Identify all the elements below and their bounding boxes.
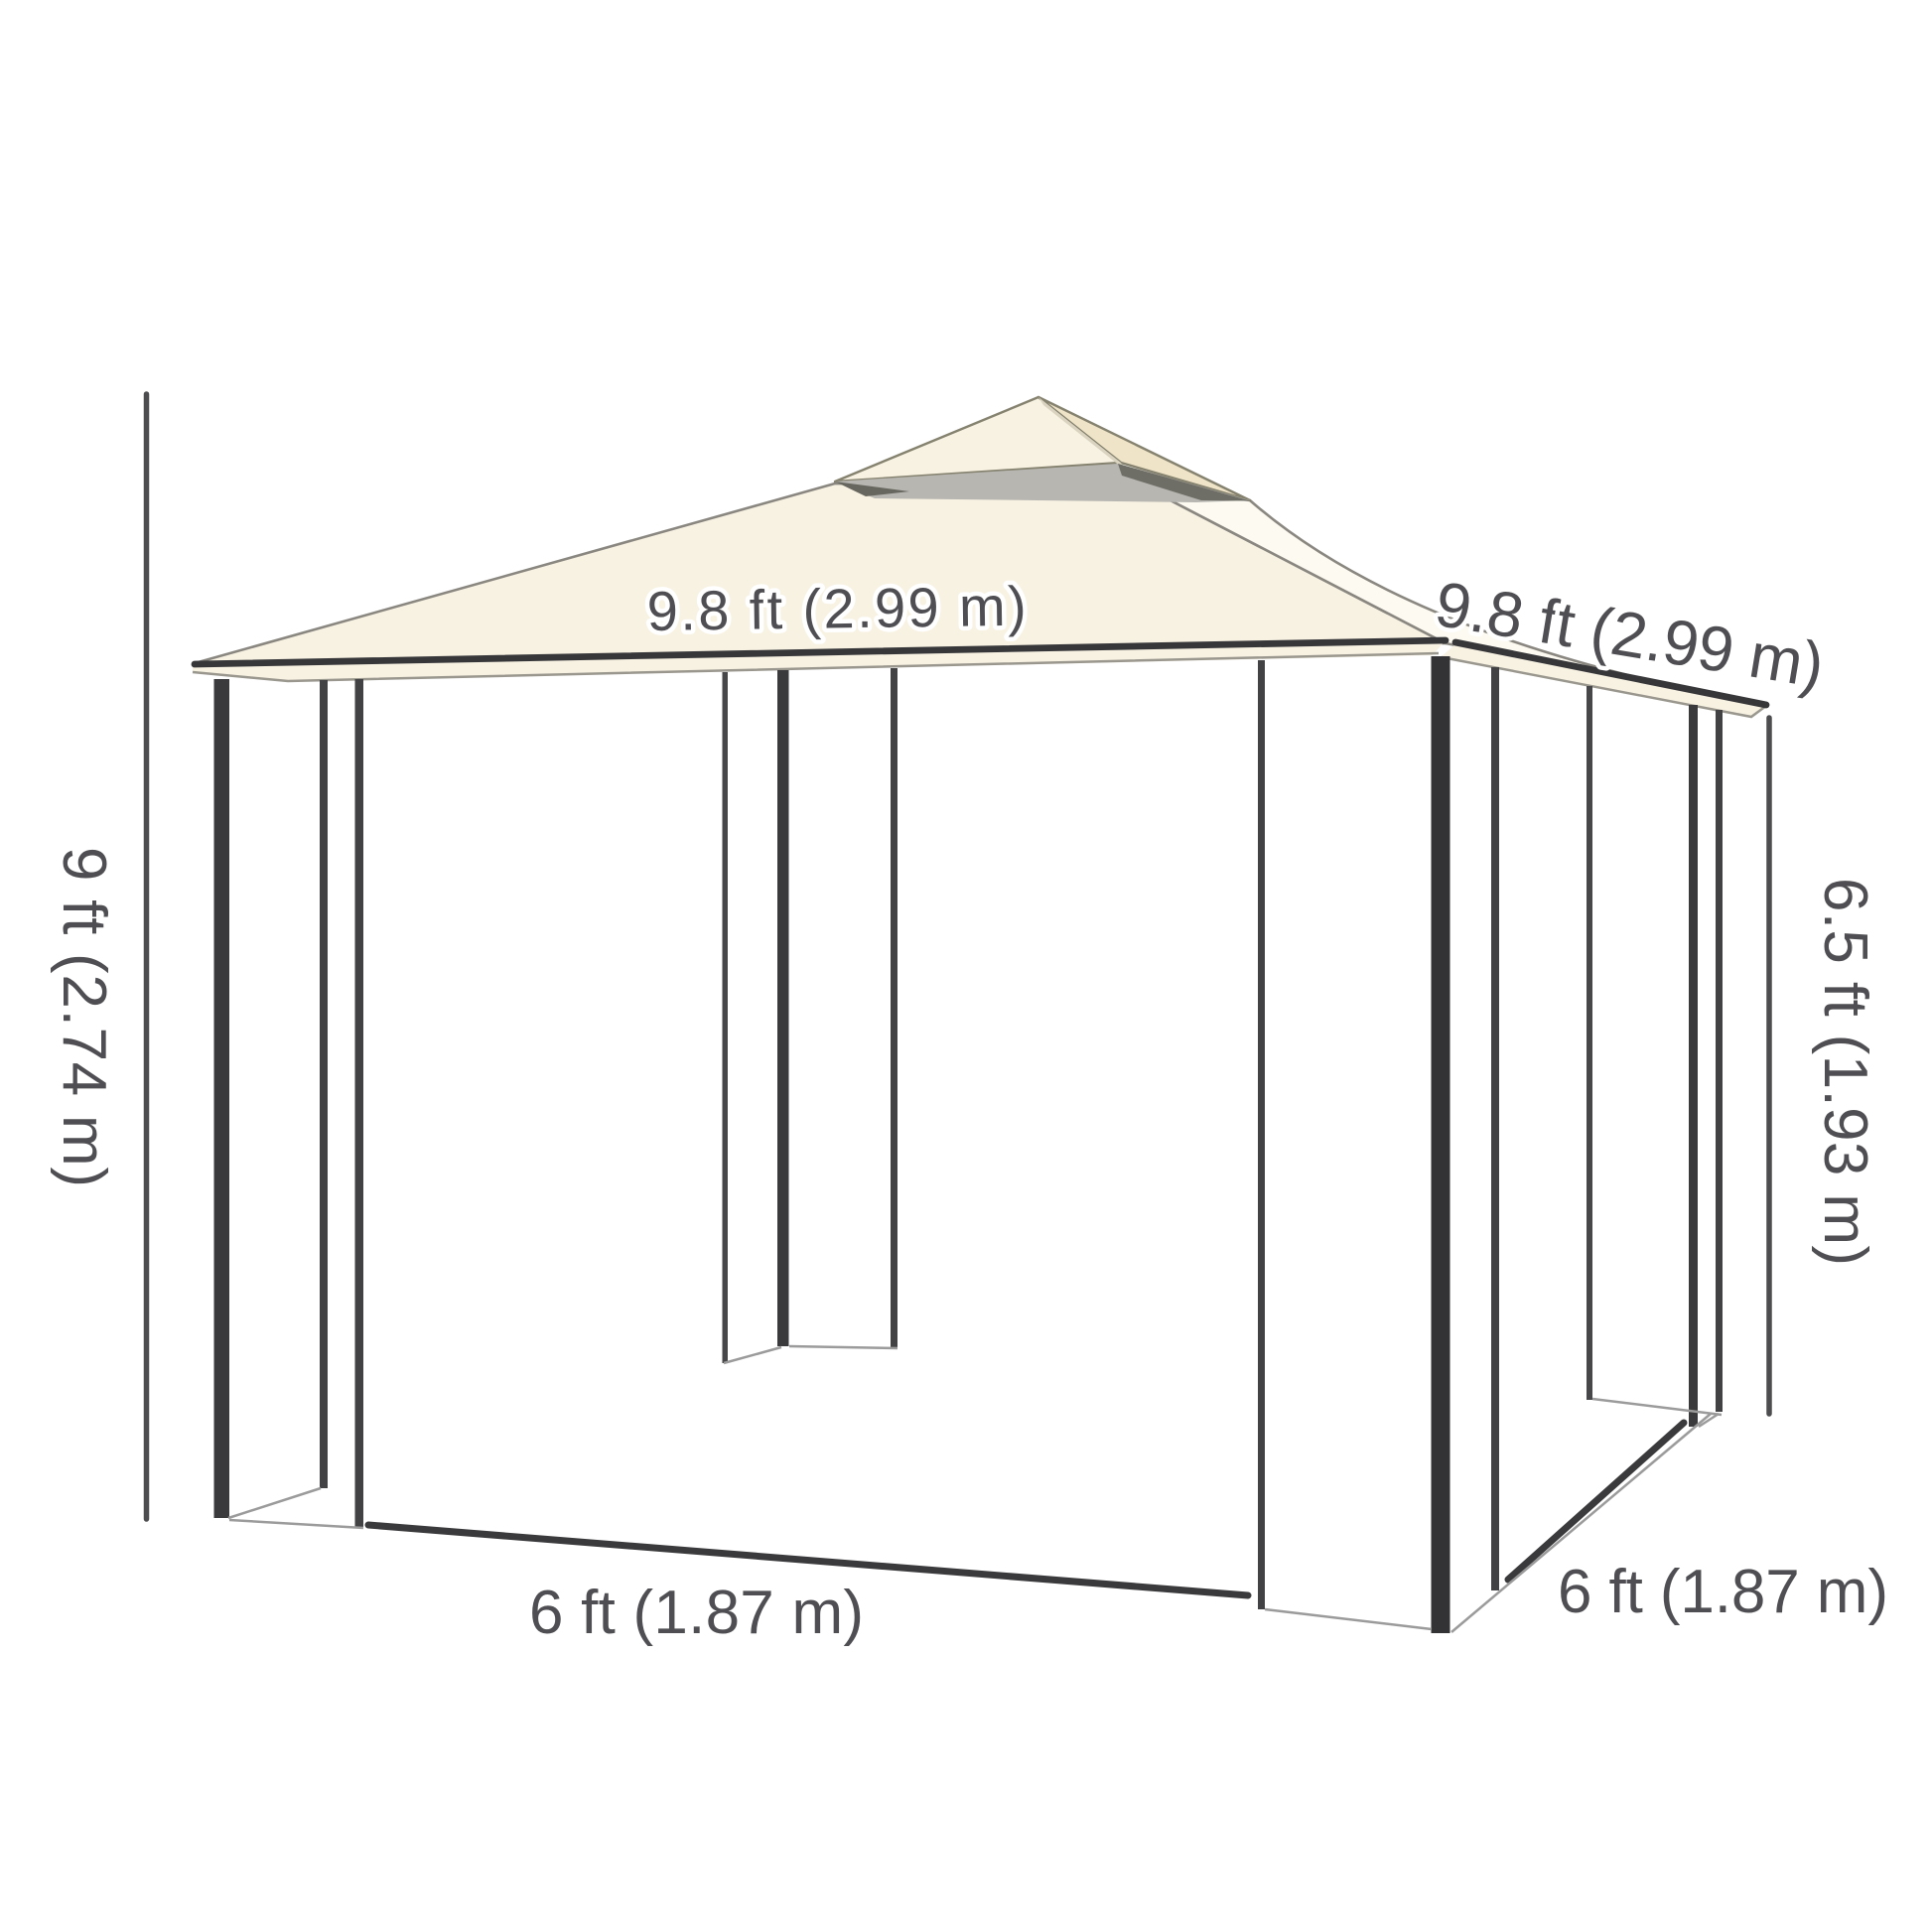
svg-text:6.5 ft (1.93 m): 6.5 ft (1.93 m) — [1811, 878, 1879, 1266]
svg-text:6 ft (1.87 m): 6 ft (1.87 m) — [1558, 1558, 1888, 1626]
svg-text:9.8 ft (2.99 m): 9.8 ft (2.99 m) — [646, 575, 1027, 642]
svg-text:6 ft (1.87 m): 6 ft (1.87 m) — [529, 1579, 864, 1647]
svg-text:9 ft (2.74 m): 9 ft (2.74 m) — [50, 847, 118, 1187]
